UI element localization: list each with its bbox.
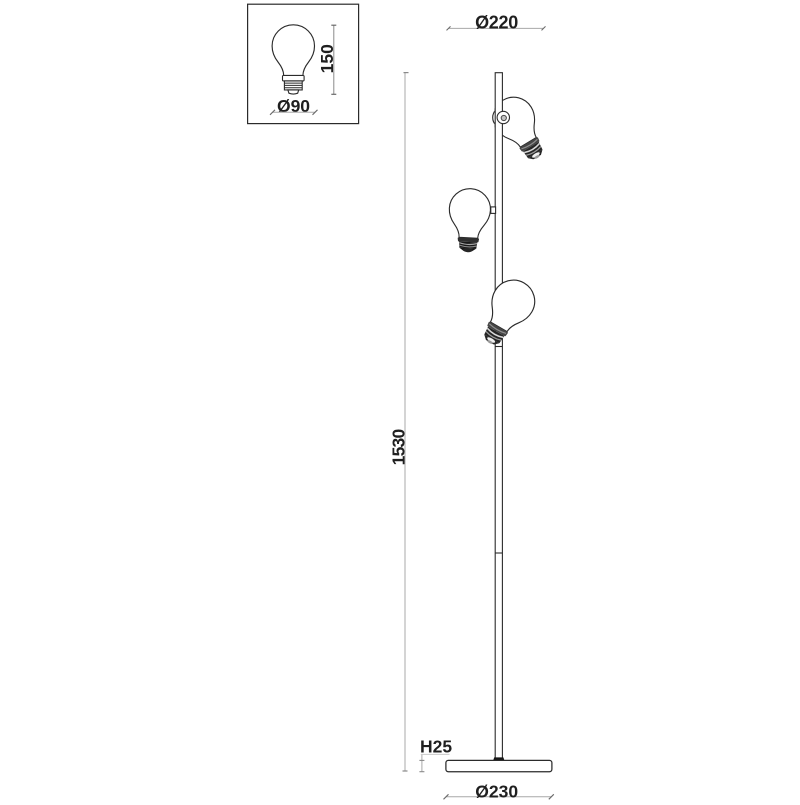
svg-text:Ø230: Ø230 <box>475 781 518 800</box>
svg-text:Ø220: Ø220 <box>475 13 518 33</box>
svg-text:1530: 1530 <box>389 429 409 466</box>
svg-text:150: 150 <box>317 44 337 73</box>
svg-text:H25: H25 <box>420 737 452 757</box>
